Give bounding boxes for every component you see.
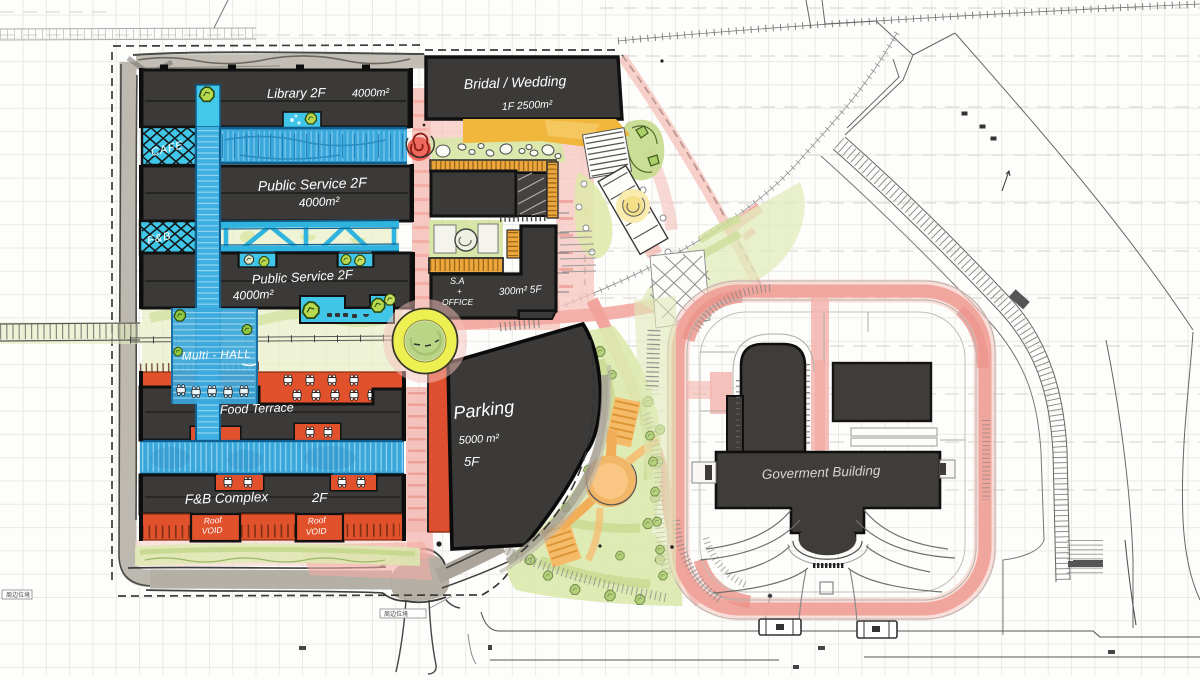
svg-text:4000m²: 4000m² (352, 87, 390, 100)
svg-text:周边位境: 周边位境 (6, 591, 30, 599)
svg-text:5F: 5F (464, 454, 480, 469)
svg-text:Library 2F: Library 2F (267, 85, 327, 101)
svg-text:Roof: Roof (307, 515, 327, 526)
svg-text:4000m²: 4000m² (298, 194, 340, 210)
svg-text:2F: 2F (311, 490, 328, 505)
svg-text:VOID: VOID (201, 525, 222, 536)
svg-text:F&B Complex: F&B Complex (185, 489, 270, 507)
svg-text:S.A: S.A (450, 276, 465, 286)
svg-text:OFFICE: OFFICE (442, 297, 473, 307)
svg-text:+: + (457, 287, 462, 296)
svg-text:VOID: VOID (305, 526, 326, 537)
svg-text:Food Terrace: Food Terrace (220, 400, 294, 417)
svg-text:4000m²: 4000m² (232, 287, 274, 303)
svg-text:Multi - HALL: Multi - HALL (182, 349, 252, 363)
svg-text:周边位境: 周边位境 (384, 610, 408, 618)
